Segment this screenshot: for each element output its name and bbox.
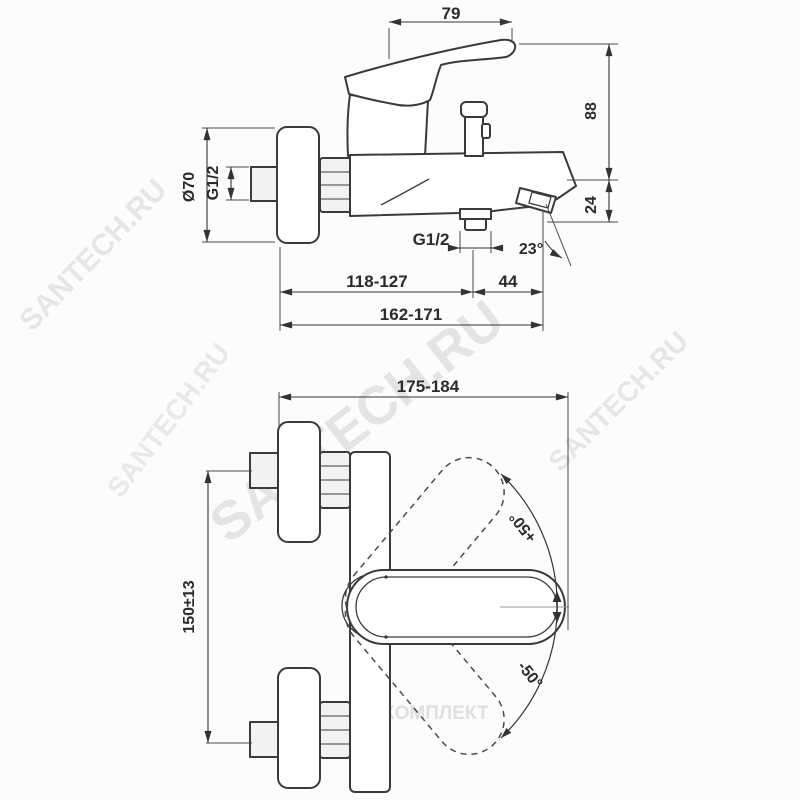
- side-lever-handle: [345, 40, 515, 106]
- front-nut-top: [320, 452, 350, 508]
- dim-g12-outlet-label: G1/2: [413, 230, 450, 249]
- watermark-brand-left-middle: SANTECH.RU: [101, 338, 236, 503]
- side-diverter-knob: [461, 102, 490, 156]
- side-wall-pipe: [251, 167, 277, 201]
- dim-23deg-label: 23°: [519, 241, 543, 258]
- dim-g12-outlet: G1/2: [413, 230, 503, 253]
- front-nut-bottom: [320, 702, 350, 758]
- front-lever-dot-bottom: [384, 635, 387, 638]
- dim-24-label: 24: [583, 196, 600, 214]
- dim-118-127-label: 118-127: [346, 272, 407, 291]
- dim-150-13-label: 150±13: [181, 580, 198, 633]
- side-shower-outlet: [460, 209, 491, 230]
- side-mounting-nut: [320, 158, 351, 212]
- side-view: 79 88 24 Ø70 G1/2: [181, 4, 618, 331]
- front-escutcheon-top: [278, 422, 320, 542]
- watermark-brand-top-left: SANTECH.RU: [13, 173, 173, 337]
- front-pipe-top: [250, 453, 278, 488]
- dim-23deg: 23°: [519, 204, 571, 266]
- dim-175-184-label: 175-184: [397, 377, 460, 396]
- dim-g12-inlet-label: G1/2: [205, 166, 222, 201]
- front-pipe-bottom: [250, 722, 278, 757]
- faucet-technical-drawing: SANTECH.RU SANTECH.RU SANTECH.RU SANTECH…: [0, 0, 800, 800]
- faucet-technical-drawing-page: SANTECH.RU SANTECH.RU SANTECH.RU SANTECH…: [0, 0, 800, 800]
- dim-79-label: 79: [442, 4, 461, 23]
- dim-g12-inlet: G1/2: [205, 166, 249, 201]
- watermark-brand-right: SANTECH.RU: [542, 325, 694, 477]
- side-escutcheon-flange: [277, 127, 319, 243]
- dim-minus50-label: -50°: [514, 658, 546, 692]
- front-lever-dot-top: [384, 575, 387, 578]
- dim-88-label: 88: [583, 102, 600, 120]
- dim-plus50-label: +50°: [506, 508, 540, 545]
- front-escutcheon-bottom: [278, 668, 320, 788]
- dim-162-171-label: 162-171: [380, 305, 442, 324]
- dim-44-label: 44: [499, 272, 518, 291]
- dim-dia70-label: Ø70: [181, 172, 198, 202]
